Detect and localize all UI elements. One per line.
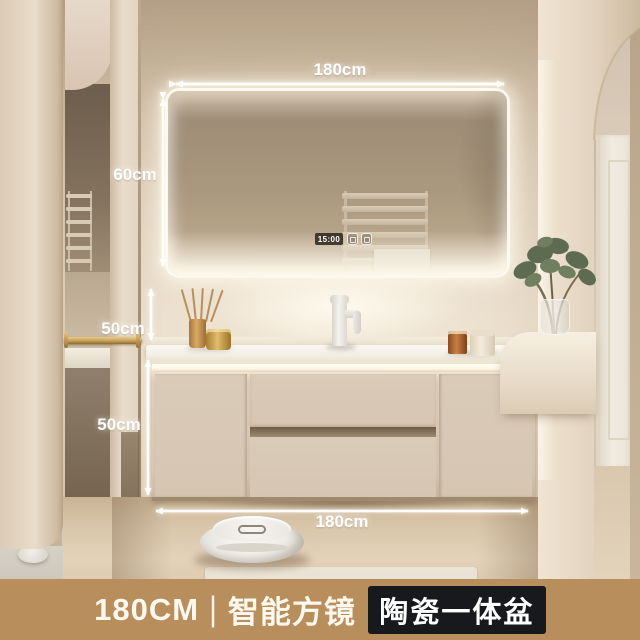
defog-button-icon bbox=[347, 233, 358, 245]
left-arch-pillar bbox=[0, 0, 63, 549]
towel-ladder-rung bbox=[66, 259, 92, 263]
plant-vase bbox=[540, 299, 570, 335]
reflected-towel-ladder-rung bbox=[342, 206, 428, 212]
cabinet-drawer-top bbox=[250, 374, 436, 427]
led-strip bbox=[152, 364, 535, 372]
dimension-label-bottom-width: 180cm bbox=[302, 512, 382, 532]
towel-ladder-rung bbox=[66, 233, 92, 237]
banner-size-label: 180CM bbox=[94, 592, 199, 628]
light-button-icon bbox=[361, 233, 372, 245]
reflected-towel-ladder-rung bbox=[342, 219, 428, 225]
banner-mirror-feature: 智能方镜 bbox=[228, 587, 356, 632]
amber-candle bbox=[448, 331, 467, 354]
gold-jar bbox=[206, 329, 231, 350]
towel-ladder-rung bbox=[66, 220, 92, 224]
robot-vacuum-handle bbox=[238, 525, 266, 534]
faucet-cap bbox=[330, 295, 349, 304]
cabinet-drawer-bottom bbox=[250, 437, 436, 497]
mirror-clock: 15:00 bbox=[315, 233, 343, 245]
banner-separator: | bbox=[209, 590, 218, 629]
dimension-label-top-width: 180cm bbox=[300, 60, 380, 80]
drawer-groove-handle bbox=[250, 427, 436, 437]
banner-basin-badge: 陶瓷一体盆 bbox=[368, 586, 546, 634]
faucet-spout-drop bbox=[353, 311, 361, 334]
cabinet-bottom-edge bbox=[152, 497, 535, 501]
product-image: 15:00 bbox=[0, 0, 640, 640]
dimension-label-cabinet-height: 50cm bbox=[92, 415, 146, 435]
plant-ledge bbox=[500, 332, 596, 414]
towel-ladder-rung bbox=[66, 246, 92, 250]
cabinet-left-door bbox=[155, 374, 247, 497]
product-banner: 180CM | 智能方镜 陶瓷一体盆 bbox=[0, 579, 640, 640]
doorway-counter bbox=[65, 348, 112, 369]
towel-ladder-rung bbox=[66, 194, 92, 198]
brass-bar-end bbox=[64, 332, 68, 348]
reed-diffuser-bottle bbox=[189, 319, 206, 348]
dimension-label-mirror-height: 60cm bbox=[108, 165, 162, 185]
cream-jar-lid bbox=[470, 330, 495, 336]
banner-title: 180CM | 智能方镜 bbox=[94, 587, 356, 632]
smart-mirror: 15:00 bbox=[165, 88, 510, 278]
robot-vacuum-bumper bbox=[216, 543, 288, 552]
towel-ladder-rung bbox=[66, 207, 92, 211]
dimension-label-splash-height: 50cm bbox=[96, 319, 150, 339]
faucet bbox=[332, 300, 347, 346]
reflected-towel-ladder-rung bbox=[342, 193, 428, 199]
